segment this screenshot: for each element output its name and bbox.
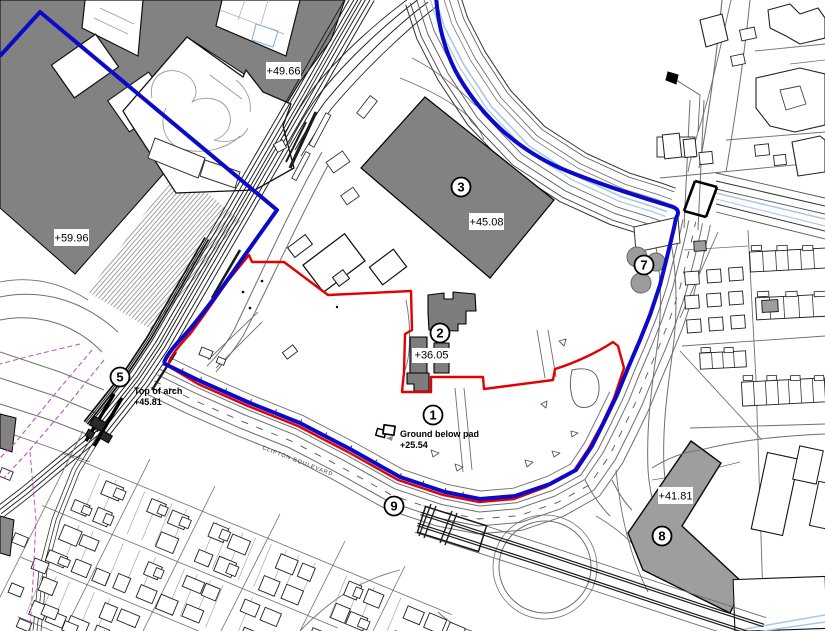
svg-text:+41.81: +41.81 bbox=[659, 491, 693, 503]
svg-text:1: 1 bbox=[429, 408, 436, 423]
svg-text:+59.96: +59.96 bbox=[55, 233, 89, 245]
svg-text:+45.81: +45.81 bbox=[134, 397, 162, 407]
svg-text:9: 9 bbox=[390, 499, 397, 514]
svg-text:Top of arch: Top of arch bbox=[134, 386, 182, 396]
svg-text:Ground below pad: Ground below pad bbox=[400, 429, 479, 439]
svg-text:7: 7 bbox=[640, 258, 647, 273]
svg-text:8: 8 bbox=[658, 529, 665, 544]
svg-text:+45.08: +45.08 bbox=[470, 217, 504, 229]
svg-text:5: 5 bbox=[116, 370, 123, 385]
svg-text:+36.05: +36.05 bbox=[415, 350, 449, 362]
svg-text:2: 2 bbox=[436, 326, 443, 341]
svg-text:+25.54: +25.54 bbox=[400, 440, 428, 450]
svg-text:+49.66: +49.66 bbox=[267, 66, 301, 78]
svg-text:3: 3 bbox=[457, 180, 464, 195]
